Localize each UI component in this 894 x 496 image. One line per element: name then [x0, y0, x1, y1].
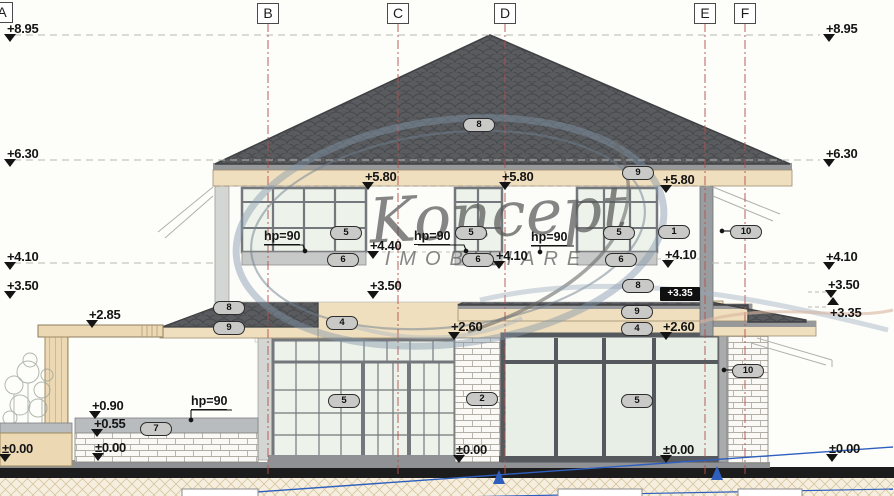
- elevation-mark: ±0.00: [2, 441, 33, 456]
- grid-axis-c: C: [387, 3, 409, 24]
- component-tag: 6: [605, 253, 637, 267]
- component-tag: 8: [622, 279, 654, 293]
- component-tag: 6: [327, 253, 359, 267]
- elevation-mark: +2.85: [89, 307, 120, 322]
- elevation-mark: +4.10: [7, 249, 38, 264]
- elevation-mark: +2.60: [663, 319, 694, 334]
- elevation-mark: ±0.00: [829, 441, 860, 456]
- elevation-mark: +3.50: [828, 277, 859, 292]
- component-tag: 4: [621, 322, 653, 336]
- elevation-mark: +0.90: [92, 398, 123, 413]
- elevation-mark: +2.60: [451, 319, 482, 334]
- component-tag: 6: [462, 253, 494, 267]
- component-tag: 5: [330, 226, 362, 240]
- elevation-mark: +5.80: [365, 169, 396, 184]
- elevation-mark: +6.30: [826, 146, 857, 161]
- component-tag: 5: [328, 394, 360, 408]
- parapet-height-label: hp=90: [264, 229, 300, 245]
- brick-pier-right: [728, 329, 768, 463]
- parapet-height-label: hp=90: [191, 394, 227, 410]
- elevation-mark: +4.10: [496, 248, 527, 263]
- parapet-height-label: hp=90: [531, 230, 567, 246]
- ground-floor-window-left: [268, 340, 460, 462]
- component-tag: 5: [621, 394, 653, 408]
- grid-axis-d: D: [494, 3, 516, 24]
- component-tag: 7: [140, 422, 172, 436]
- elevation-mark: +5.80: [663, 172, 694, 187]
- elevation-mark: +8.95: [7, 21, 38, 36]
- roof-eave-level-tag: +3.35: [660, 287, 700, 301]
- downspout: [719, 331, 727, 462]
- elevation-mark: +6.30: [7, 146, 38, 161]
- component-tag: 5: [603, 226, 635, 240]
- elevation-mark: +4.10: [665, 247, 696, 262]
- elevation-mark: +3.50: [7, 278, 38, 293]
- elevation-mark: +4.40: [370, 238, 401, 253]
- component-tag: 10: [732, 364, 764, 378]
- elevation-mark: +5.80: [502, 169, 533, 184]
- component-tag: 5: [455, 226, 487, 240]
- component-tag: 4: [326, 316, 358, 330]
- component-tag: 10: [730, 225, 762, 239]
- grid-axis-b: B: [257, 3, 279, 24]
- elevation-drawing-canvas: Koncept IMOBILIARE A B C D E F +8.95 +6.…: [0, 0, 894, 496]
- component-tag: 9: [621, 305, 653, 319]
- parapet-height-label: hp=90: [414, 229, 450, 245]
- elevation-mark: ±0.00: [95, 440, 126, 455]
- grid-axis-a: A: [0, 2, 13, 23]
- corner-post: [700, 186, 713, 336]
- component-tag: 9: [213, 321, 245, 335]
- elevation-mark: +8.95: [826, 21, 857, 36]
- elevation-mark: +3.35: [830, 305, 861, 320]
- elevation-mark: +4.10: [826, 249, 857, 264]
- component-tag: 1: [658, 225, 690, 239]
- elevation-mark: +0.55: [94, 416, 125, 431]
- elevation-mark: ±0.00: [456, 442, 487, 457]
- grid-axis-e: E: [694, 3, 716, 24]
- component-tag: 8: [463, 118, 495, 132]
- component-tag: 8: [213, 301, 245, 315]
- grid-axis-f: F: [734, 3, 756, 24]
- elevation-mark: +3.50: [370, 278, 401, 293]
- component-tag: 9: [622, 166, 654, 180]
- elevation-mark: ±0.00: [663, 442, 694, 457]
- component-tag: 2: [466, 392, 498, 406]
